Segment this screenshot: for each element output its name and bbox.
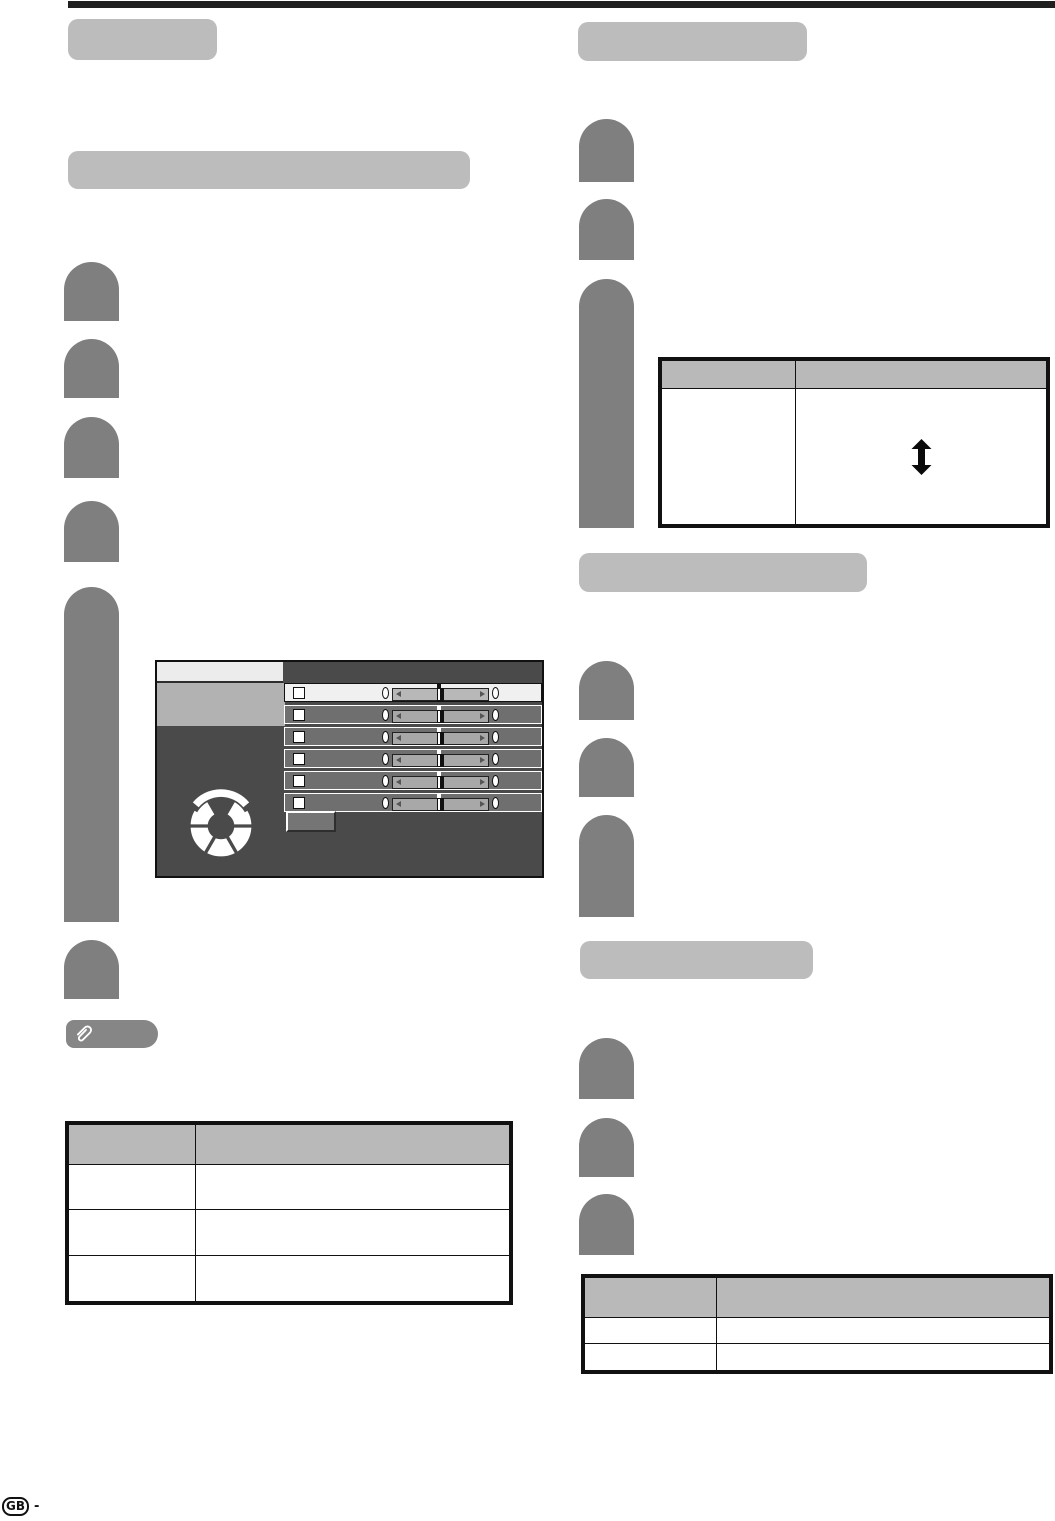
slider-track [392, 688, 489, 701]
arrow-left-icon [396, 757, 401, 763]
table-header-cell [196, 1125, 509, 1165]
manual-page: GB - [0, 0, 1055, 1521]
slider-handle [437, 710, 444, 723]
slider-left-value [382, 731, 389, 743]
arrow-left-icon [396, 801, 401, 807]
slider-left-value [382, 797, 389, 809]
step-bubble [579, 738, 634, 797]
table-cell [585, 1344, 717, 1370]
heading-right-1 [578, 22, 807, 61]
arrow-right-icon [480, 757, 485, 763]
step-bubble [64, 501, 119, 562]
table-header-cell [662, 361, 796, 389]
table-cell [796, 389, 1046, 524]
step-bubble-tall [579, 279, 634, 528]
slider-track [392, 732, 489, 745]
table-cell [196, 1256, 509, 1301]
slider-track [392, 798, 489, 811]
slider-track [392, 754, 489, 767]
arrow-right-icon [480, 779, 485, 785]
heading-left-small [68, 19, 217, 60]
step-bubble-tall [579, 815, 634, 917]
step-bubble [579, 661, 634, 720]
slider-handle [437, 688, 444, 701]
heading-right-2 [579, 553, 867, 592]
osd-title-tab [157, 662, 283, 683]
osd-slider-row [284, 749, 542, 768]
page-top-rule [68, 1, 1055, 8]
left-table [65, 1121, 513, 1305]
table-header-cell [717, 1278, 1049, 1318]
page-footer: GB - [2, 1497, 39, 1516]
slider-right-value [492, 687, 499, 699]
slider-left-value [382, 687, 389, 699]
arrow-left-icon [396, 713, 401, 719]
osd-slider-row [284, 683, 542, 702]
note-badge [66, 1020, 158, 1048]
arrow-left-icon [396, 735, 401, 741]
arrow-right-icon [480, 691, 485, 697]
table-header-cell [796, 361, 1046, 389]
table-cell [69, 1210, 196, 1255]
slider-handle [437, 754, 444, 767]
step-bubble [64, 940, 119, 999]
nav-wheel-icon [183, 788, 259, 864]
step-bubble [579, 1194, 634, 1255]
slider-handle [437, 732, 444, 745]
slider-handle [437, 798, 444, 811]
table-cell [717, 1344, 1049, 1370]
step-bubble [579, 119, 634, 182]
osd-button [286, 811, 336, 832]
footer-separator: - [34, 1499, 39, 1514]
checkbox-icon [293, 797, 305, 809]
table-cell [69, 1256, 196, 1301]
slider-right-value [492, 709, 499, 721]
paperclip-icon [73, 1021, 99, 1047]
step-bubble-tall [64, 587, 119, 922]
checkbox-icon [293, 709, 305, 721]
arrow-left-icon [396, 779, 401, 785]
osd-slider-row [284, 793, 542, 812]
checkbox-icon [293, 731, 305, 743]
step-bubble [579, 199, 634, 260]
step-bubble [579, 1038, 634, 1099]
osd-slider-row [284, 771, 542, 790]
checkbox-icon [293, 687, 305, 699]
table-cell [717, 1318, 1049, 1344]
slider-left-value [382, 775, 389, 787]
osd-selected-item [157, 683, 285, 726]
osd-slider-row [284, 727, 542, 746]
heading-right-3 [580, 941, 813, 979]
table-cell [69, 1165, 196, 1210]
slider-left-value [382, 709, 389, 721]
table-cell [662, 389, 796, 524]
checkbox-icon [293, 753, 305, 765]
table-cell [196, 1165, 509, 1210]
table-cell [196, 1210, 509, 1255]
right-top-table [658, 357, 1050, 528]
slider-handle [437, 776, 444, 789]
step-bubble [64, 417, 119, 478]
up-down-arrow-icon [911, 439, 932, 475]
table-cell [585, 1318, 717, 1344]
step-bubble [64, 262, 119, 321]
osd-slider-row [284, 705, 542, 724]
slider-track [392, 776, 489, 789]
region-badge: GB [2, 1497, 29, 1516]
step-bubble [64, 339, 119, 398]
slider-right-value [492, 797, 499, 809]
table-header-cell [585, 1278, 717, 1318]
step-bubble [579, 1118, 634, 1177]
heading-left-long [68, 151, 470, 189]
right-bottom-table [581, 1274, 1053, 1374]
slider-right-value [492, 753, 499, 765]
slider-right-value [492, 731, 499, 743]
checkbox-icon [293, 775, 305, 787]
arrow-left-icon [396, 691, 401, 697]
slider-left-value [382, 753, 389, 765]
osd-menu-screenshot [155, 660, 544, 878]
slider-right-value [492, 775, 499, 787]
arrow-right-icon [480, 713, 485, 719]
slider-track [392, 710, 489, 723]
arrow-right-icon [480, 801, 485, 807]
table-header-cell [69, 1125, 196, 1165]
arrow-right-icon [480, 735, 485, 741]
